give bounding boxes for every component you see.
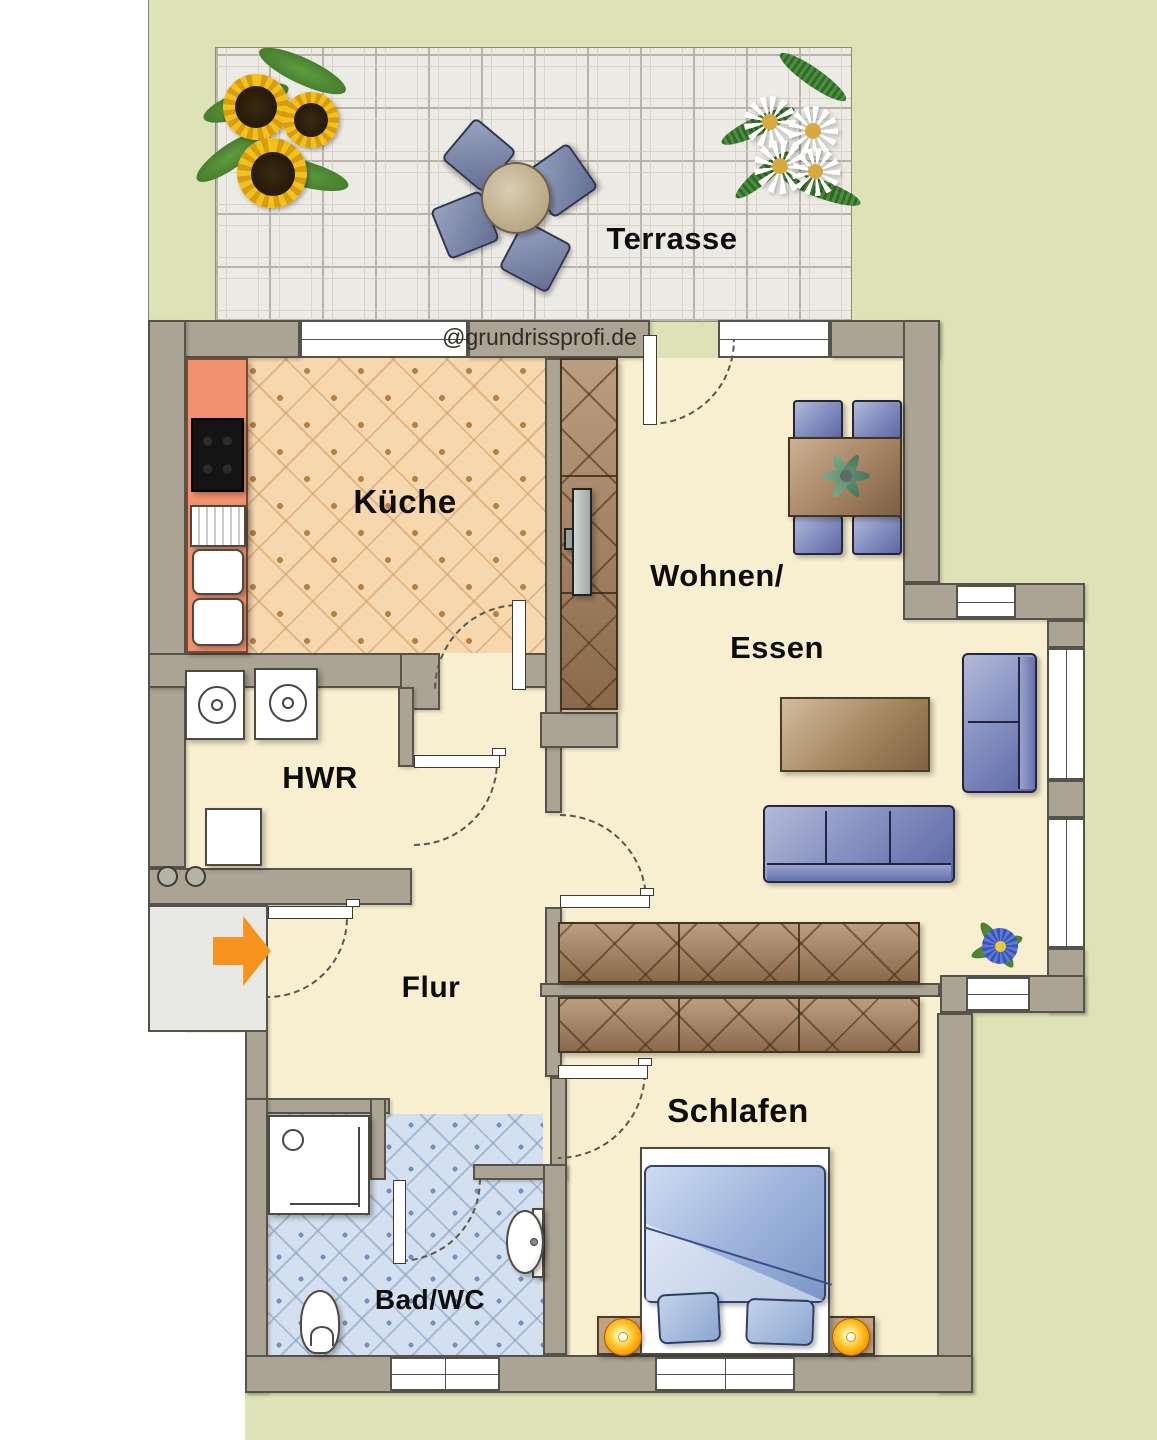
daisy-center: [772, 158, 788, 174]
dining-chair: [793, 515, 843, 555]
hwr-door-leaf: [414, 755, 500, 768]
kitchen-door-leaf: [512, 600, 526, 690]
dryer-door-center: [282, 697, 294, 709]
kitchen-label: Küche: [330, 483, 480, 521]
sofa: [763, 805, 955, 883]
window-divider: [445, 1359, 446, 1389]
pillow: [745, 1298, 815, 1346]
window-bath: [390, 1357, 500, 1391]
wall: [937, 1013, 973, 1393]
wall-fixture: [185, 866, 206, 887]
door-frame-tick: [346, 899, 360, 907]
loveseat-backrest: [1018, 657, 1035, 789]
daisy-center: [808, 164, 823, 179]
sofa-backrest: [767, 863, 951, 881]
cabinet: [205, 808, 262, 866]
duvet: [644, 1165, 826, 1303]
dining-chair: [793, 400, 843, 440]
window-east-lower: [1047, 818, 1085, 948]
window-living-south: [966, 977, 1030, 1011]
terrace-table: [481, 162, 551, 234]
sink-bowl: [192, 549, 244, 595]
cooktop: [191, 418, 244, 492]
flower-center: [995, 941, 1006, 952]
washing-machine: [185, 670, 245, 740]
pillow: [657, 1291, 722, 1344]
lamp-center: [846, 1332, 856, 1342]
window-living-north: [718, 320, 830, 358]
window-divider: [725, 1359, 726, 1389]
cushion-divider: [889, 811, 891, 863]
window-bedroom: [655, 1357, 795, 1391]
cushion-divider: [825, 811, 827, 863]
living-label-line1: Wohnen/: [637, 558, 797, 594]
bedroom-door-leaf: [558, 1065, 648, 1079]
living-label-line2: Essen: [697, 630, 857, 666]
wall: [1047, 780, 1085, 818]
wall: [398, 687, 414, 767]
shower-drain: [282, 1129, 304, 1151]
wall: [370, 1098, 386, 1180]
door-frame-tick: [638, 1058, 652, 1066]
daisies: [718, 62, 858, 212]
window-east-jog: [956, 585, 1016, 618]
flower-plant: [968, 916, 1028, 974]
hwr-label: HWR: [245, 760, 395, 796]
door-frame-tick: [492, 748, 506, 756]
sunflower-center: [294, 103, 328, 137]
shower: [268, 1115, 370, 1215]
cushion-divider: [968, 721, 1018, 723]
dining-chair: [852, 400, 902, 440]
wall: [540, 712, 618, 748]
coffee-table: [780, 697, 930, 772]
wall: [903, 320, 940, 583]
dryer: [254, 668, 318, 740]
window-east-upper: [1047, 648, 1085, 780]
tv-screen: [572, 488, 592, 596]
toilet-bowl: [310, 1326, 334, 1346]
wall: [245, 1355, 973, 1393]
living-door-leaf: [560, 895, 650, 908]
wall: [1047, 620, 1085, 648]
toilet: [300, 1290, 340, 1354]
wall: [148, 320, 186, 868]
table-plant: [818, 448, 874, 504]
bedroom-label: Schlafen: [643, 1092, 833, 1130]
wall: [245, 1098, 268, 1393]
entrance-door-leaf: [268, 906, 353, 919]
daisy-center: [762, 114, 778, 130]
bath-door-leaf: [393, 1180, 406, 1264]
sunflower-center: [235, 86, 277, 128]
daisy-center: [805, 123, 821, 139]
white-margin-bottom-left: [0, 1032, 245, 1440]
watermark: @grundrissprofi.de: [432, 324, 647, 351]
loveseat: [962, 653, 1037, 793]
dining-chair: [852, 515, 902, 555]
bath-label: Bad/WC: [355, 1284, 505, 1316]
shower-edge: [358, 1127, 360, 1207]
bed-lamp: [604, 1318, 642, 1356]
wall: [540, 983, 940, 997]
bed-lamp: [832, 1318, 870, 1356]
sink-bowl: [192, 598, 244, 646]
sideboard-living: [558, 922, 920, 983]
lamp-center: [618, 1332, 628, 1342]
plant-center: [840, 470, 852, 482]
washer-door-center: [211, 699, 223, 711]
washbasin: [506, 1210, 544, 1274]
wall: [543, 1164, 567, 1355]
terrace-label: Terrasse: [582, 221, 762, 257]
faucet: [530, 1238, 538, 1246]
wardrobe-bedroom: [558, 997, 920, 1053]
hall-label: Flur: [356, 971, 506, 1005]
wall-fixture: [157, 866, 178, 887]
sunflowers: [195, 50, 360, 210]
sink-drainer: [190, 505, 246, 547]
door-frame-tick: [640, 888, 654, 896]
sunflower-center: [251, 152, 295, 196]
shower-edge: [290, 1203, 360, 1205]
floor-plan: Terrasse: [0, 0, 1157, 1440]
